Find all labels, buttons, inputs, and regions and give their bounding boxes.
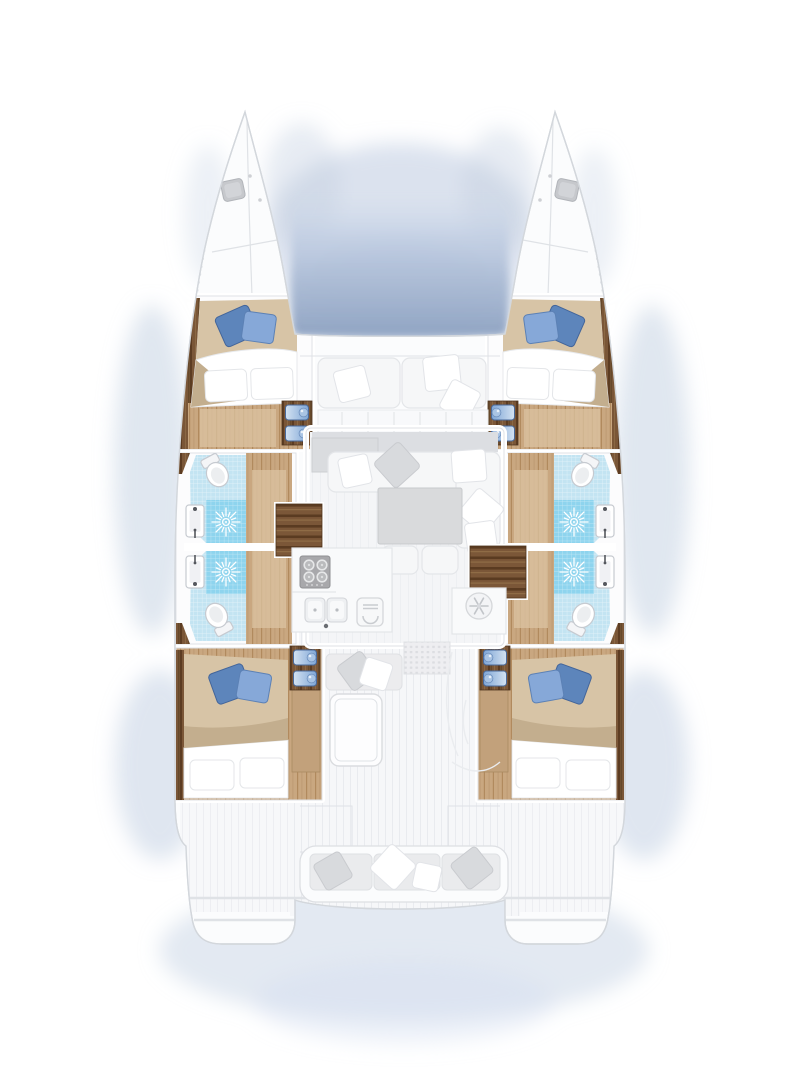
pillow bbox=[190, 760, 234, 790]
catamaran-deck-plan bbox=[0, 0, 810, 1080]
aft-cabin bbox=[176, 646, 322, 800]
door-mat bbox=[404, 642, 450, 674]
cockpit-table bbox=[330, 694, 382, 766]
blue-pillow bbox=[236, 669, 273, 703]
forward-cabin bbox=[174, 296, 312, 449]
pillow bbox=[240, 758, 284, 788]
pillow bbox=[337, 453, 373, 489]
stool bbox=[422, 546, 458, 574]
shower-rose-icon bbox=[212, 508, 240, 536]
double-bed bbox=[184, 654, 288, 798]
washbasin-icon bbox=[186, 505, 204, 538]
bathroom-forward bbox=[186, 452, 246, 543]
fridge-icon bbox=[466, 593, 492, 619]
bathroom-aft bbox=[186, 551, 246, 641]
washbasin-icon bbox=[186, 555, 204, 588]
pillow bbox=[412, 862, 443, 893]
trampoline-water-shadow bbox=[292, 196, 508, 336]
pillow bbox=[204, 369, 248, 402]
pillow bbox=[250, 367, 293, 399]
shower-rose-icon bbox=[212, 558, 240, 586]
deck-plan-page bbox=[0, 0, 810, 1080]
blue-pillow bbox=[241, 311, 277, 344]
stove-icon bbox=[300, 556, 330, 588]
pillow bbox=[333, 365, 372, 404]
entry-steps bbox=[290, 646, 320, 690]
double-bed bbox=[191, 299, 297, 407]
side-shelf bbox=[292, 688, 320, 772]
pillow bbox=[451, 449, 487, 483]
coffee-table bbox=[378, 488, 462, 544]
deck-hatch bbox=[220, 178, 246, 202]
oven-icon bbox=[357, 598, 383, 626]
